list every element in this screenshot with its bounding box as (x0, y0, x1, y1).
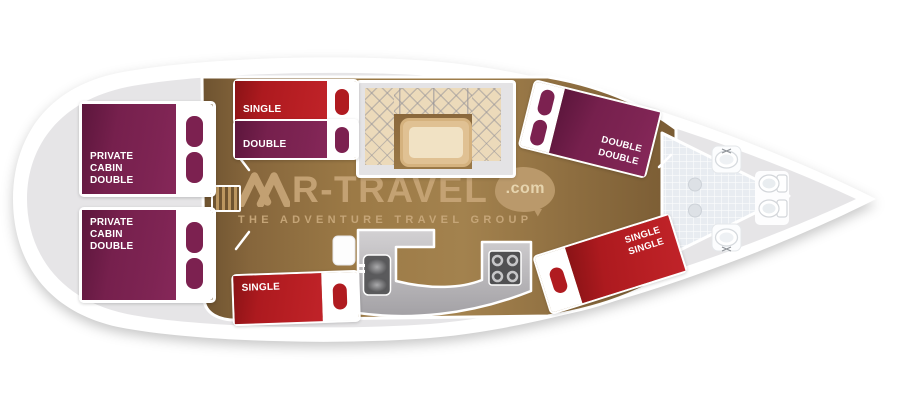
pillow-panel (327, 81, 357, 123)
galley-sink (359, 255, 391, 295)
pillow (536, 88, 556, 117)
yacht-deck-plan: R-TRAVEL .com THE ADVENTURE TRAVEL GROUP… (0, 0, 900, 400)
bed-private-cabin-top: PRIVATE CABIN DOUBLE (79, 101, 216, 197)
bed-label: DOUBLE DOUBLE (597, 135, 643, 169)
bed-label: PRIVATE CABIN DOUBLE (90, 151, 133, 187)
washbasin (712, 146, 741, 173)
pillow-panel (327, 121, 357, 158)
bed-label: SINGLE (241, 282, 280, 295)
pillow (548, 266, 569, 295)
floor-drain (689, 178, 702, 191)
bed-private-cabin-bottom: PRIVATE CABIN DOUBLE (79, 207, 216, 303)
pillow (186, 222, 203, 253)
bed-label: SINGLE SINGLE (624, 225, 666, 260)
galley-fridge (333, 236, 355, 265)
pillow (335, 89, 349, 115)
pillow (186, 258, 203, 289)
toilet (759, 175, 787, 192)
logo-mountain-m-icon (238, 171, 290, 207)
bed-single-bottom: SINGLE (231, 270, 361, 326)
bed-double-mid: DOUBLE (233, 119, 359, 160)
pillow (186, 116, 203, 147)
pillow-panel (176, 210, 213, 300)
table-top (409, 127, 463, 158)
pillow (529, 118, 549, 147)
pillow (333, 283, 348, 309)
bed-label: DOUBLE (243, 139, 286, 151)
saloon-table (400, 118, 472, 167)
pillow (186, 152, 203, 183)
settee-cushion (472, 88, 501, 161)
saloon-settee (356, 80, 516, 178)
pillow-panel (176, 104, 213, 194)
bed-label: SINGLE (243, 104, 281, 116)
settee-cushion (365, 88, 394, 165)
logo-tagline: THE ADVENTURE TRAVEL GROUP (238, 214, 583, 226)
toilet (759, 200, 787, 217)
logo-tld: .com (506, 180, 545, 198)
pillow-panel (321, 272, 359, 321)
galley-stove (489, 251, 521, 285)
floor-drain (689, 204, 702, 217)
bed-label: PRIVATE CABIN DOUBLE (90, 217, 133, 253)
pillow (335, 127, 349, 153)
washbasin (712, 224, 741, 251)
